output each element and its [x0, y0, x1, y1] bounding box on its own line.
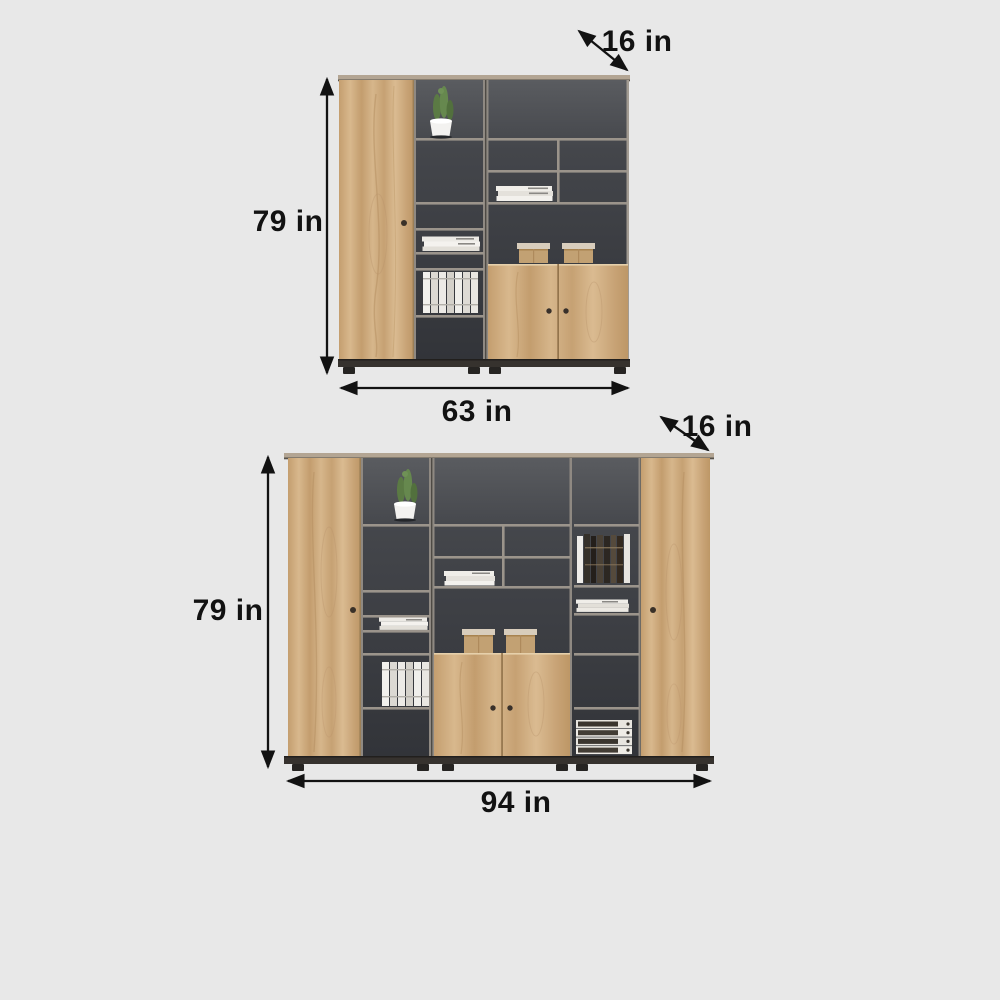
- door-knob: [401, 220, 407, 226]
- right-shelf-section: [487, 80, 630, 359]
- width-dimension-label: 63 in: [442, 397, 513, 427]
- double-wood-doors: [434, 653, 570, 756]
- height-dimension-label: 79 in: [193, 596, 264, 626]
- door-knob: [507, 705, 512, 710]
- left-shelf-column: [361, 458, 434, 756]
- cabinet-63in-illustration: [338, 74, 630, 376]
- door-knob: [350, 607, 356, 613]
- cabinet-base: [338, 359, 630, 374]
- door-knob: [650, 607, 656, 613]
- middle-shelf-column: [414, 80, 488, 359]
- middle-shelf-section: [433, 458, 573, 756]
- door-knob: [563, 308, 568, 313]
- right-wood-door: [641, 458, 710, 756]
- flat-books: [422, 237, 480, 252]
- depth-dimension-label: 16 in: [602, 27, 673, 57]
- flat-books: [576, 600, 629, 612]
- white-binders: [423, 272, 478, 313]
- right-shelf-column: [572, 458, 643, 756]
- flat-books: [379, 618, 428, 630]
- height-dimension-label: 79 in: [253, 207, 324, 237]
- cabinet-94in-illustration: [284, 452, 714, 774]
- door-knob: [546, 308, 551, 313]
- width-dimension-label: 94 in: [481, 788, 552, 818]
- product-dimension-image: 16 in 79 in 63 in: [0, 0, 1000, 1000]
- flat-books: [444, 571, 495, 586]
- left-wood-door: [339, 80, 414, 359]
- depth-dimension-label: 16 in: [682, 412, 753, 442]
- double-wood-doors: [488, 264, 628, 359]
- cabinet-base: [284, 756, 714, 771]
- door-knob: [490, 705, 495, 710]
- flat-books: [496, 186, 553, 201]
- left-wood-door: [288, 458, 361, 756]
